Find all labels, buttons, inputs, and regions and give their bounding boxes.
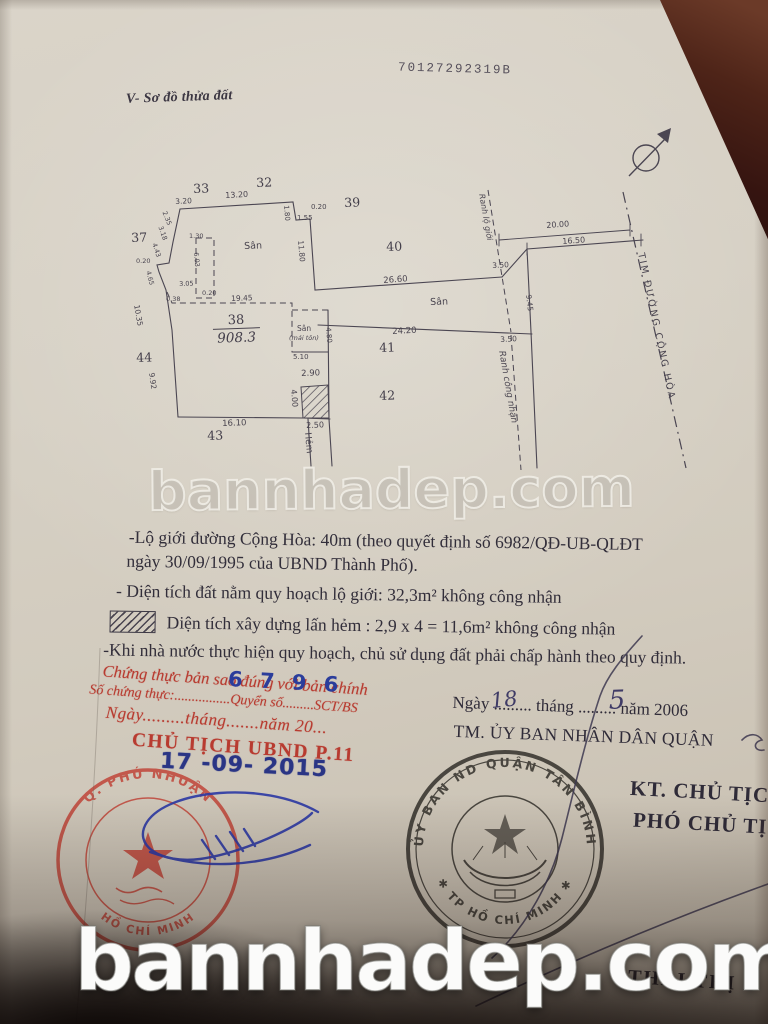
lot38-area-value: 908.3 xyxy=(213,327,260,348)
measurement-label: 2.90 xyxy=(301,368,320,379)
handwritten-day: 18 xyxy=(490,686,519,713)
lot-label: 33 xyxy=(193,180,209,196)
measurement-label: 1.80 xyxy=(282,205,291,221)
measurement-label: 3.05 xyxy=(179,279,194,288)
measurement-label: 4.80 xyxy=(324,327,333,343)
date-word: Ngày xyxy=(452,693,489,713)
measurement-label: TIM ĐƯỜNG CỘNG HÒA xyxy=(635,252,677,401)
measurement-label: 3.50 xyxy=(492,260,509,270)
note-text: Diện tích xây dựng lấn hẻm : 2,9 x 4 = 1… xyxy=(166,612,615,639)
measurement-label: 11.80 xyxy=(296,240,307,262)
date-word: tháng xyxy=(536,696,574,716)
measurement-label: Ranh lộ giới xyxy=(477,193,494,241)
notes-block: -Lộ giới đường Cộng Hòa: 40m (theo quyết… xyxy=(103,526,755,669)
plot-diagram: 3332393740444142433.2013.200.201.551.801… xyxy=(0,0,768,490)
note-line: -Khi nhà nước thực hiện quy hoạch, chủ s… xyxy=(103,639,753,669)
measurement-label: 2.50 xyxy=(306,420,324,430)
measurement-label: 4.43 xyxy=(150,242,162,258)
measurement-label: 1.30 xyxy=(189,232,203,240)
measurement-label: 0.38 xyxy=(166,295,180,303)
measurement-label: 20.00 xyxy=(546,219,569,230)
measurement-label: 26.60 xyxy=(383,274,408,286)
measurement-label: Sân xyxy=(244,240,262,252)
lot-label: 39 xyxy=(344,194,360,210)
measurement-label: 0.20 xyxy=(202,289,216,297)
measurement-label: (mái tôn) xyxy=(289,334,319,342)
measurement-label: 4.00 xyxy=(289,389,300,408)
hatch-swatch-icon xyxy=(109,611,155,634)
measurement-label: 13.20 xyxy=(225,190,248,200)
measurement-label: 3.50 xyxy=(500,334,517,344)
kt-title: KT. CHỦ TỊCH xyxy=(629,776,768,809)
lot38-number: 38 xyxy=(212,312,259,329)
measurement-label: 10.35 xyxy=(132,304,145,327)
measurement-label: 16.10 xyxy=(222,418,247,429)
measurement-label: 9.45 xyxy=(524,294,535,312)
measurement-label: Ranh công nhận xyxy=(496,350,519,424)
approval-date-line: Ngày ......... tháng ......... năm 2006 … xyxy=(430,692,715,722)
measurement-label: 24.20 xyxy=(392,326,417,337)
measurement-label: 0.20 xyxy=(136,257,150,265)
lot-label: 44 xyxy=(136,349,152,365)
measurement-label: 4.65 xyxy=(144,270,155,286)
measurement-label: 6.03 xyxy=(192,252,201,267)
lot-label: 37 xyxy=(131,229,147,245)
measurement-label: Sân xyxy=(430,296,448,308)
lot-label: 42 xyxy=(379,387,395,403)
measurement-label: 0.20 xyxy=(311,203,327,211)
note-line: - Diện tích đất nằm quy hoạch lộ giới: 3… xyxy=(116,581,754,611)
svg-text:Q. PHÚ NHUẬN: Q. PHÚ NHUẬN xyxy=(81,766,215,807)
lot-label: 32 xyxy=(256,174,272,190)
vice-chairman-title: PHÓ CHỦ TỊCH xyxy=(632,808,768,842)
note-line: Diện tích xây dựng lấn hẻm : 2,9 x 4 = 1… xyxy=(109,611,753,642)
measurement-label: 19.45 xyxy=(231,293,253,303)
measurement-label: 16.50 xyxy=(562,235,585,246)
lot-label: 43 xyxy=(207,427,223,443)
measurement-label: 9.92 xyxy=(147,372,158,390)
measurement-label: 3.20 xyxy=(175,196,192,206)
measurement-label: Sân xyxy=(297,324,311,333)
handwritten-month: 5 xyxy=(608,685,626,716)
star-icon xyxy=(123,832,173,879)
measurement-label: 2.35 xyxy=(161,210,174,226)
diagram-labels: 3332393740444142433.2013.200.201.551.801… xyxy=(0,0,768,490)
lot38-area-label: 38 908.3 xyxy=(212,312,260,348)
date-word: năm 2006 xyxy=(620,699,688,720)
measurement-label: 3.18 xyxy=(156,225,168,241)
measurement-label: Hẻm xyxy=(302,432,314,454)
lot-label: 41 xyxy=(379,339,395,355)
measurement-label: 1.55 xyxy=(297,214,313,222)
watermark-bottom: bannhadep.com xyxy=(74,912,768,1010)
lot-label: 40 xyxy=(386,238,402,254)
photo-canvas: 70127292319B V- Sơ đồ thửa đất xyxy=(0,0,768,1024)
measurement-label: 5.10 xyxy=(293,353,309,361)
watermark-middle: bannhadep.com xyxy=(148,456,635,523)
